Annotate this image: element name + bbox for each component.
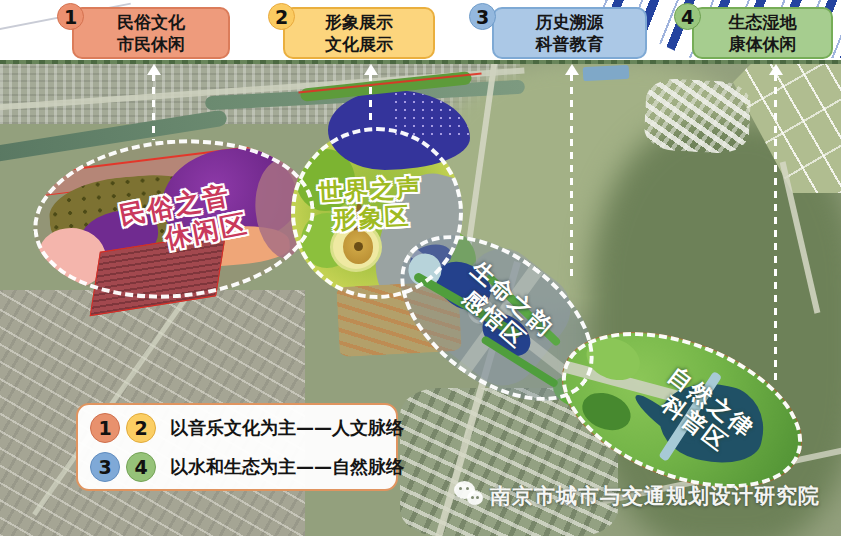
watermark: 南京市城市与交通规划设计研究院 <box>452 480 820 512</box>
region-label-zone2: 世界之声 形象区 <box>287 172 456 237</box>
header-band: 民俗文化 市民休闲 1 形象展示 文化展示 2 历史溯源 科普教育 3 生态湿地… <box>0 0 841 60</box>
arrowhead-up-icon <box>147 64 161 75</box>
connector-arrow-zone2 <box>369 74 372 124</box>
arrowhead-up-icon <box>769 64 783 75</box>
header-zone2-box: 形象展示 文化展示 <box>283 7 435 59</box>
header-zone2-line2: 文化展示 <box>325 33 393 55</box>
header-zone2-line1: 形象展示 <box>325 11 393 33</box>
wechat-icon <box>452 480 490 512</box>
header-zone1-number-badge: 1 <box>57 3 84 30</box>
connector-arrow-zone3 <box>570 74 573 280</box>
arrowhead-up-icon <box>565 64 579 75</box>
legend-row-nature: 3 4 以水和生态为主——自然脉络 <box>90 452 384 482</box>
zone-number: 3 <box>476 6 489 28</box>
legend-circle-3: 3 <box>90 452 120 482</box>
header-zone3-line1: 历史溯源 <box>536 11 604 33</box>
header-zone4-line1: 生态湿地 <box>729 11 797 33</box>
legend-text: 以水和生态为主——自然脉络 <box>170 455 404 479</box>
header-zone4-box: 生态湿地 康体休闲 <box>692 7 833 59</box>
header-zone1-line2: 市民休闲 <box>117 33 185 55</box>
header-zone3-line2: 科普教育 <box>536 33 604 55</box>
wechat-bubble-small <box>467 491 483 505</box>
legend-row-culture: 1 2 以音乐文化为主——人文脉络 <box>90 413 384 443</box>
connector-arrow-zone4 <box>774 74 777 386</box>
header-zone3-box: 历史溯源 科普教育 <box>492 7 647 59</box>
legend-circle-1: 1 <box>90 413 120 443</box>
arrowhead-up-icon <box>364 64 378 75</box>
header-zone1-line1: 民俗文化 <box>117 11 185 33</box>
header-zone3-number-badge: 3 <box>469 3 496 30</box>
watermark-text: 南京市城市与交通规划设计研究院 <box>490 482 820 510</box>
legend-circle-2: 2 <box>126 413 156 443</box>
legend-number: 3 <box>98 456 111 478</box>
legend-number: 4 <box>134 456 147 478</box>
pool-feature <box>583 65 630 81</box>
zone-number: 4 <box>681 6 694 28</box>
map-texture-village-midtop <box>643 77 752 154</box>
legend-box: 1 2 以音乐文化为主——人文脉络 3 4 以水和生态为主——自然脉络 <box>76 403 398 491</box>
header-zone4-line2: 康体休闲 <box>729 33 797 55</box>
header-zone1-box: 民俗文化 市民休闲 <box>72 7 230 59</box>
legend-circle-4: 4 <box>126 452 156 482</box>
legend-number: 2 <box>134 417 147 439</box>
legend-number: 1 <box>98 417 111 439</box>
header-zone4-number-badge: 4 <box>674 3 701 30</box>
zone-number: 2 <box>275 6 288 28</box>
connector-arrow-zone1 <box>152 74 155 140</box>
planning-map-infographic: 民俗之音 休闲区 世界之声 形象区 生命之韵 感悟区 自然之律 科普区 1 2 … <box>0 0 841 536</box>
header-zone2-number-badge: 2 <box>268 3 295 30</box>
legend-text: 以音乐文化为主——人文脉络 <box>170 416 404 440</box>
zone-number: 1 <box>64 6 77 28</box>
